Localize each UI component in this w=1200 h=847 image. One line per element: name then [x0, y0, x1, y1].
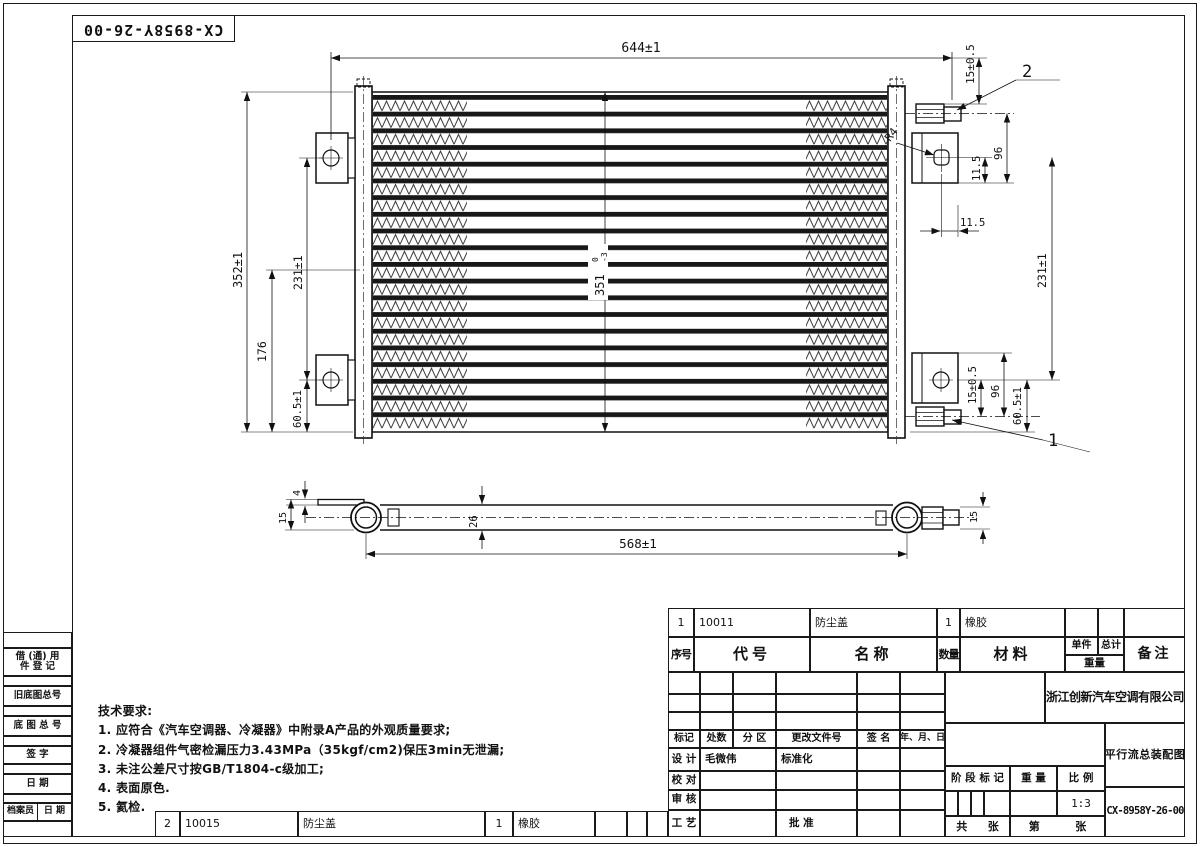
balloon-1: 1 [1048, 431, 1058, 451]
date-box: 日 期 [3, 774, 72, 794]
company-name: 浙江创新汽车空调有限公司 [1045, 672, 1185, 723]
technical-requirements: 技术要求: 1. 应符合《汽车空调器、冷凝器》中附录A产品的外观质量要求; 2.… [98, 702, 504, 818]
zhang1-label: 张 [988, 821, 999, 833]
revision-cell [857, 712, 900, 730]
revision-cell [668, 694, 700, 712]
left-mounting-brackets [316, 133, 355, 405]
left-strip-empty [3, 794, 72, 803]
dim-351-sub: -3 [600, 252, 609, 262]
side-view [306, 500, 974, 533]
tech-title: 技术要求: [98, 702, 504, 721]
borrow-register-box: 借 (通) 用 件 登 记 [3, 648, 72, 676]
bom-header-seq: 序号 [668, 637, 694, 672]
dim-644-label: 644±1 [621, 41, 660, 56]
bom-header-total: 总计 [1098, 637, 1124, 655]
tech-item: 2. 冷凝器组件气密检漏压力3.43MPa（35kgf/cm2)保压3min无泄… [98, 741, 504, 760]
bom-header-name: 名称 [810, 637, 937, 672]
revision-cell [900, 712, 945, 730]
dim-176-label: 176 [255, 341, 269, 362]
revision-cell [733, 672, 776, 694]
tech-item: 4. 表面原色. [98, 779, 504, 798]
dim-351-label: 351 [593, 274, 607, 296]
sig-empty [700, 790, 776, 810]
bom-row2-material: 橡胶 [513, 811, 595, 837]
review-label: 审 核 [668, 790, 700, 810]
scale-value: 1:3 [1057, 791, 1105, 816]
signature-box: 签 字 [3, 746, 72, 764]
designer-name: 毛微伟 [700, 748, 776, 771]
bom-row2-qty: 1 [485, 811, 513, 837]
balloon-2: 2 [1022, 62, 1032, 82]
bom-row1-empty [1098, 608, 1124, 637]
bom-row2-name: 防尘盖 [298, 811, 485, 837]
dim-115v-label: 11.5 [971, 156, 983, 181]
dim-351-sup: 0 [591, 257, 600, 262]
sig-empty [900, 748, 945, 771]
condenser-core [372, 92, 888, 432]
bom-header-qty: 数量 [937, 637, 960, 672]
sig-empty [857, 790, 900, 810]
dim-352-label: 352±1 [231, 252, 245, 288]
weight-value-cell [1010, 791, 1057, 816]
left-strip-empty [3, 676, 72, 686]
revision-cell [668, 672, 700, 694]
left-strip-empty [3, 632, 72, 648]
right-mounting-brackets [912, 133, 958, 403]
revision-cell [776, 694, 857, 712]
stage-empty-block [945, 672, 1045, 723]
left-strip-empty [3, 706, 72, 716]
bom-header-unit: 单件 [1065, 637, 1098, 655]
design-label: 设 计 [668, 748, 700, 771]
stage-small-cell [971, 791, 984, 816]
dim-26-label: 26 [468, 515, 480, 528]
sig-empty [857, 771, 900, 790]
sheet-no-cell: 第 张 [1010, 816, 1105, 837]
stage-mark-label: 阶 段 标 记 [945, 766, 1010, 791]
drawing-title: 平行流总装配图 [1105, 723, 1185, 787]
sig-empty [776, 790, 857, 810]
change-doc-label: 更改文件号 [776, 730, 857, 748]
dim-605l-label: 60.5±1 [292, 390, 304, 428]
bom-row1-empty [1124, 608, 1185, 637]
revision-cell [857, 694, 900, 712]
revision-cell [900, 672, 945, 694]
dim-96top-label: 96 [992, 147, 1005, 160]
tech-item: 3. 未注公差尺寸按GB/T1804-c级加工; [98, 760, 504, 779]
archivist-date-box: 日 期 [37, 803, 72, 821]
sig-empty [900, 790, 945, 810]
dim-231l-label: 231±1 [291, 255, 305, 290]
archivist-box: 档案员 [3, 803, 38, 821]
sig-empty [857, 810, 900, 837]
sheets-total-cell: 共 张 [945, 816, 1010, 837]
dim-605r-label: 60.5±1 [1012, 387, 1024, 425]
bom-header-code: 代号 [694, 637, 810, 672]
left-strip-empty [3, 736, 72, 746]
bom-header-remark: 备注 [1124, 637, 1185, 672]
dim-96bot-label: 96 [989, 385, 1002, 398]
stage-empty-block [945, 723, 1105, 766]
gong-label: 共 [956, 821, 967, 833]
count-label: 处数 [700, 730, 733, 748]
zone-label: 分 区 [733, 730, 776, 748]
sign-label: 签 名 [857, 730, 900, 748]
sig-empty [900, 771, 945, 790]
scale-label: 比 例 [1057, 766, 1105, 791]
bom-row1-empty [1065, 608, 1098, 637]
revision-cell [700, 672, 733, 694]
sig-empty [776, 771, 857, 790]
bom-row2-seq: 2 [155, 811, 180, 837]
dim-568-label: 568±1 [619, 536, 657, 551]
mark-label: 标记 [668, 730, 700, 748]
revision-cell [776, 712, 857, 730]
left-strip-empty [3, 821, 72, 837]
dim-4-label: 4 [292, 490, 303, 496]
tech-item: 1. 应符合《汽车空调器、冷凝器》中附录A产品的外观质量要求; [98, 721, 504, 740]
revision-cell [700, 694, 733, 712]
drawing-sheet: CX-8958Y-26-00 [0, 0, 1200, 847]
revision-cell [733, 712, 776, 730]
bom-row2-empty [647, 811, 668, 837]
stage-small-cell [984, 791, 1010, 816]
revision-cell [900, 694, 945, 712]
bom-row1-seq: 1 [668, 608, 694, 637]
dim-115h-label: 11.5 [960, 217, 985, 229]
di-label: 第 [1029, 821, 1040, 833]
approve-label: 批 准 [776, 810, 857, 837]
date-label: 年、月、日 [900, 730, 945, 748]
drawing-number: CX-8958Y-26-00 [1105, 787, 1185, 837]
bom-row2-empty [627, 811, 647, 837]
revision-cell [668, 712, 700, 730]
revision-cell [776, 672, 857, 694]
sig-empty [700, 810, 776, 837]
bom-row1-material: 橡胶 [960, 608, 1065, 637]
bom-row1-code: 10011 [694, 608, 810, 637]
bom-header-weight: 重量 [1065, 655, 1124, 672]
revision-cell [733, 694, 776, 712]
stage-small-cell [958, 791, 971, 816]
dim-15top-label: 15±0.5 [964, 44, 977, 84]
bom-row1-name: 防尘盖 [810, 608, 937, 637]
old-base-drawing-no-box: 旧底图总号 [3, 686, 72, 706]
bom-row2-empty [595, 811, 627, 837]
zhang2-label: 张 [1075, 821, 1086, 833]
bom-row1-qty: 1 [937, 608, 960, 637]
base-drawing-no-box: 底 图 总 号 [3, 716, 72, 736]
dim-231r-label: 231±1 [1035, 253, 1049, 288]
dim-15r-label: 15 [969, 511, 980, 523]
standardize-label: 标准化 [776, 748, 857, 771]
dim-15bot-label: 15±0.5 [967, 366, 979, 404]
check-label: 校 对 [668, 771, 700, 790]
revision-cell [700, 712, 733, 730]
process-label: 工 艺 [668, 810, 700, 837]
weight-label: 重 量 [1010, 766, 1057, 791]
bom-row2-code: 10015 [180, 811, 298, 837]
borrow-register-line2: 件 登 记 [20, 662, 55, 672]
sig-empty [857, 748, 900, 771]
left-strip-empty [3, 764, 72, 774]
sig-empty [700, 771, 776, 790]
stage-small-cell [945, 791, 958, 816]
revision-cell [857, 672, 900, 694]
sig-empty [900, 810, 945, 837]
side-fitting [922, 507, 943, 529]
dim-15l-label: 15 [278, 512, 289, 524]
bom-header-material: 材料 [960, 637, 1065, 672]
